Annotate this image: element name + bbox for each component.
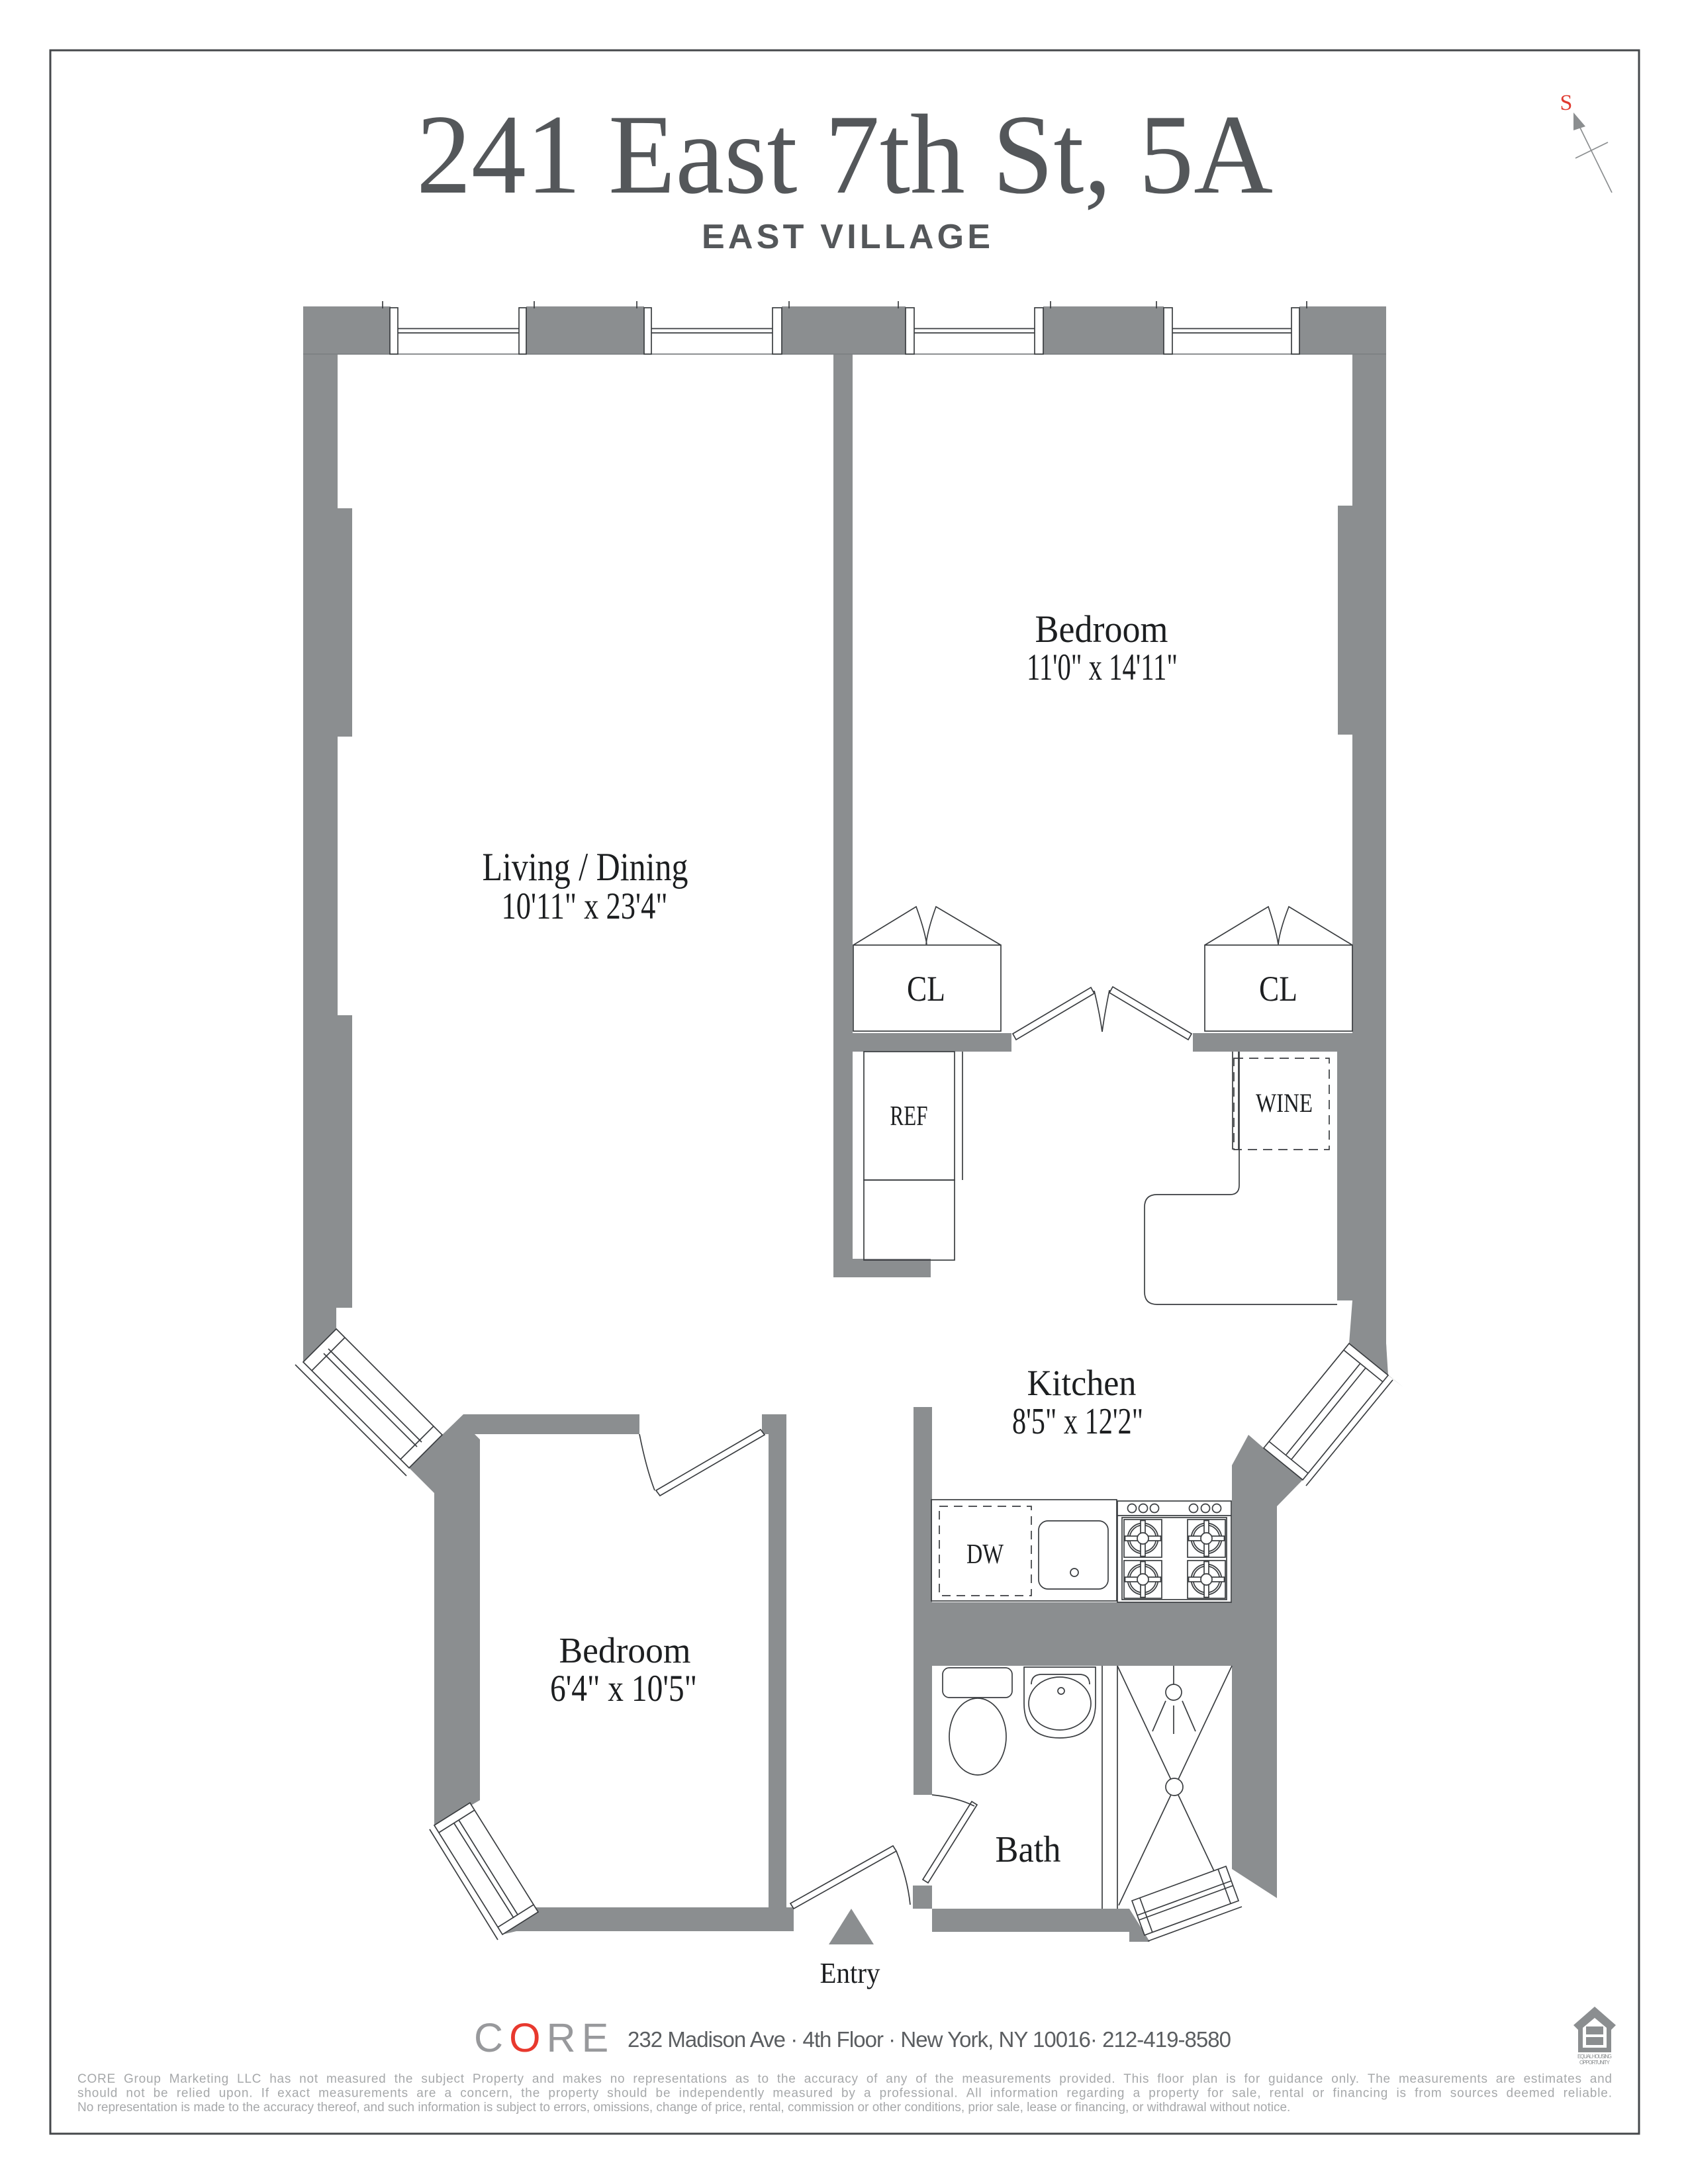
svg-text:Bath: Bath	[996, 1829, 1061, 1870]
svg-text:CORE: CORE	[474, 2015, 614, 2060]
svg-text:241 East 7th St, 5A: 241 East 7th St, 5A	[416, 92, 1273, 218]
svg-text:S: S	[1560, 91, 1573, 115]
svg-text:Living / Dining: Living / Dining	[483, 845, 688, 889]
svg-text:No representation is made to t: No representation is made to the accurac…	[77, 2101, 1290, 2115]
svg-text:Bedroom: Bedroom	[1035, 608, 1168, 651]
svg-text:should not be relied upon.: should not be relied upon. If exact meas…	[77, 2087, 1612, 2101]
svg-text:232 Madison Ave · 4th Floor ·: 232 Madison Ave · 4th Floor · New York, …	[628, 2027, 1231, 2052]
svg-text:6'4" x 10'5": 6'4" x 10'5"	[550, 1668, 697, 1709]
svg-text:WINE: WINE	[1256, 1088, 1313, 1118]
svg-text:REF: REF	[890, 1101, 928, 1132]
svg-text:Entry: Entry	[820, 1957, 880, 1989]
svg-text:11'0" x 14'11": 11'0" x 14'11"	[1027, 647, 1178, 688]
svg-text:CL: CL	[1259, 969, 1297, 1009]
svg-text:Kitchen: Kitchen	[1027, 1363, 1137, 1403]
svg-text:OPPORTUNITY: OPPORTUNITY	[1579, 2060, 1611, 2066]
svg-text:DW: DW	[966, 1539, 1004, 1570]
svg-text:8'5" x 12'2": 8'5" x 12'2"	[1012, 1401, 1143, 1442]
svg-text:CL: CL	[907, 969, 945, 1009]
svg-text:Bedroom: Bedroom	[559, 1630, 691, 1670]
svg-text:10'11" x 23'4": 10'11" x 23'4"	[502, 886, 668, 927]
svg-text:EQUAL HOUSING: EQUAL HOUSING	[1577, 2054, 1612, 2060]
svg-text:CORE Group Marketing LLC h: CORE Group Marketing LLC has not measure…	[77, 2072, 1612, 2086]
